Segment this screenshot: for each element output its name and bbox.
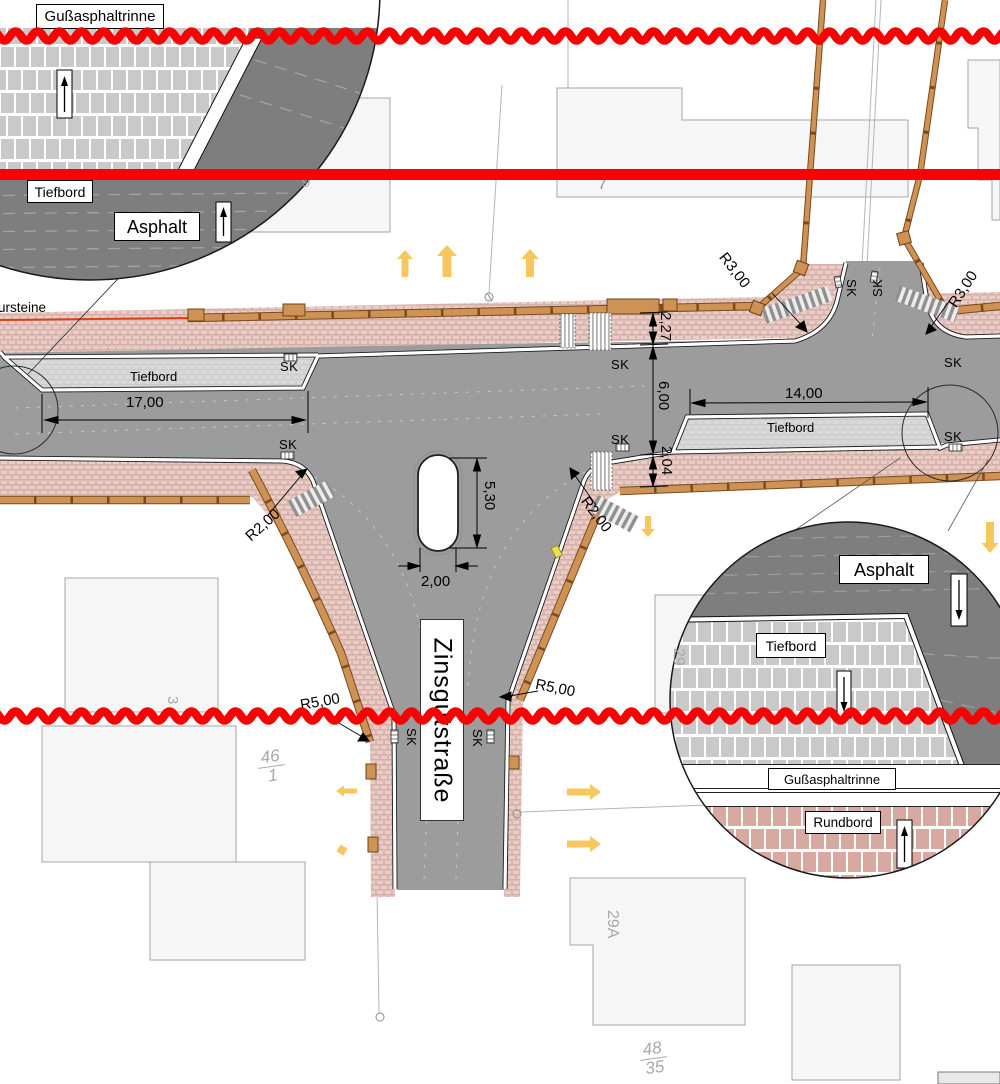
paving-direction-arrow-icon bbox=[837, 671, 851, 718]
paving-direction-arrow-icon bbox=[57, 70, 72, 118]
detail-inset-bottom-right bbox=[660, 515, 1000, 895]
traffic-island bbox=[414, 451, 462, 555]
arrow-up-icon bbox=[437, 245, 457, 277]
arrow-left-icon bbox=[336, 786, 357, 797]
arrow-right-icon bbox=[567, 784, 601, 800]
building-outline bbox=[42, 726, 236, 862]
building-outline bbox=[792, 965, 900, 1080]
building-outline bbox=[570, 878, 745, 1025]
paving-direction-arrow-icon bbox=[951, 574, 967, 626]
arrow-down-icon bbox=[982, 522, 999, 553]
building-outline bbox=[150, 862, 305, 960]
building-outline bbox=[938, 1072, 1000, 1084]
parking-bay-left bbox=[5, 355, 318, 390]
building-outline bbox=[65, 578, 218, 712]
arrow-right-icon bbox=[567, 836, 601, 852]
yellow-marker bbox=[337, 845, 348, 856]
arrow-up-icon bbox=[521, 249, 539, 277]
paving-direction-arrow-icon bbox=[216, 202, 231, 242]
site-plan-drawing bbox=[0, 0, 1000, 1084]
arrow-up-icon bbox=[397, 250, 413, 277]
arrow-down-icon bbox=[641, 516, 655, 537]
building-outline bbox=[557, 88, 908, 197]
paving-direction-arrow-icon bbox=[897, 820, 912, 868]
building-outline bbox=[968, 60, 1000, 220]
site-plan: Gußasphaltrinne Tiefbord Asphalt urstein… bbox=[0, 0, 1000, 1084]
